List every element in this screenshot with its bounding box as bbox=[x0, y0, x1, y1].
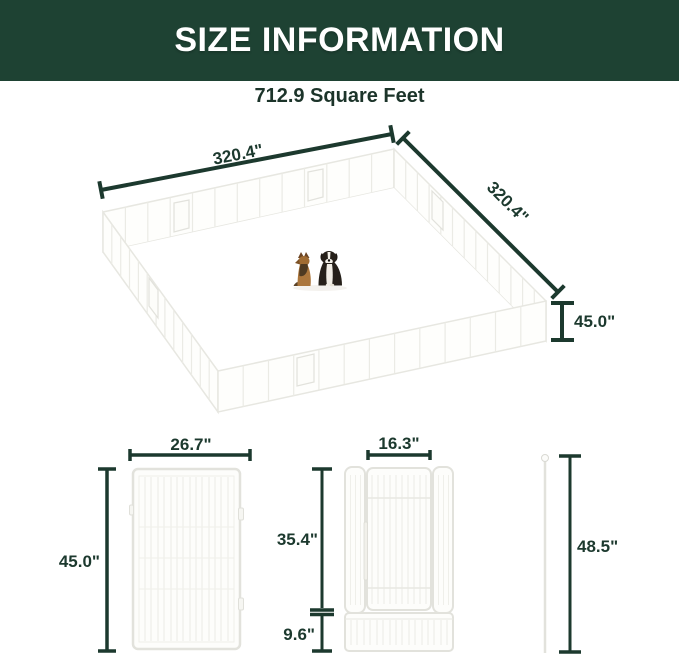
panel-connector-tab bbox=[239, 598, 244, 610]
panel-front-view bbox=[130, 469, 244, 649]
door-width-label: 16.3" bbox=[378, 434, 419, 453]
wall-door-frame bbox=[308, 169, 323, 201]
door-upper-height-dimension: 35.4" bbox=[277, 469, 334, 615]
enclosure-height-dimension: 45.0" bbox=[551, 303, 615, 340]
panel-connector-tab bbox=[130, 505, 134, 515]
enclosure-height-label: 45.0" bbox=[574, 312, 615, 331]
size-information-page: { "banner": { "title": "SIZE INFORMATION… bbox=[0, 0, 679, 655]
door-upper-height-label: 35.4" bbox=[277, 530, 318, 549]
door-handle bbox=[364, 522, 368, 580]
panel-width-dimension: 26.7" bbox=[130, 435, 250, 461]
stake-top-knob bbox=[542, 455, 549, 462]
panel-height-dimension: 45.0" bbox=[59, 469, 116, 651]
wall-door-frame bbox=[174, 200, 189, 232]
wall-door-frame bbox=[297, 354, 314, 386]
door-lower-height-dimension: 9.6" bbox=[283, 615, 332, 651]
door-panel-front-view bbox=[345, 467, 453, 651]
door-width-dimension: 16.3" bbox=[368, 434, 430, 460]
stake-height-dimension: 48.5" bbox=[559, 456, 618, 652]
door-lower-height-label: 9.6" bbox=[283, 625, 315, 644]
size-diagram: 320.4" 320.4" 45.0" 26.7" 45.0" bbox=[0, 0, 679, 655]
panel-connector-tab bbox=[239, 508, 244, 520]
enclosure-depth-label: 320.4" bbox=[483, 178, 532, 227]
panel-height-label: 45.0" bbox=[59, 552, 100, 571]
panel-width-label: 26.7" bbox=[170, 435, 211, 454]
stake-height-label: 48.5" bbox=[577, 537, 618, 556]
ground-stake bbox=[542, 455, 549, 654]
